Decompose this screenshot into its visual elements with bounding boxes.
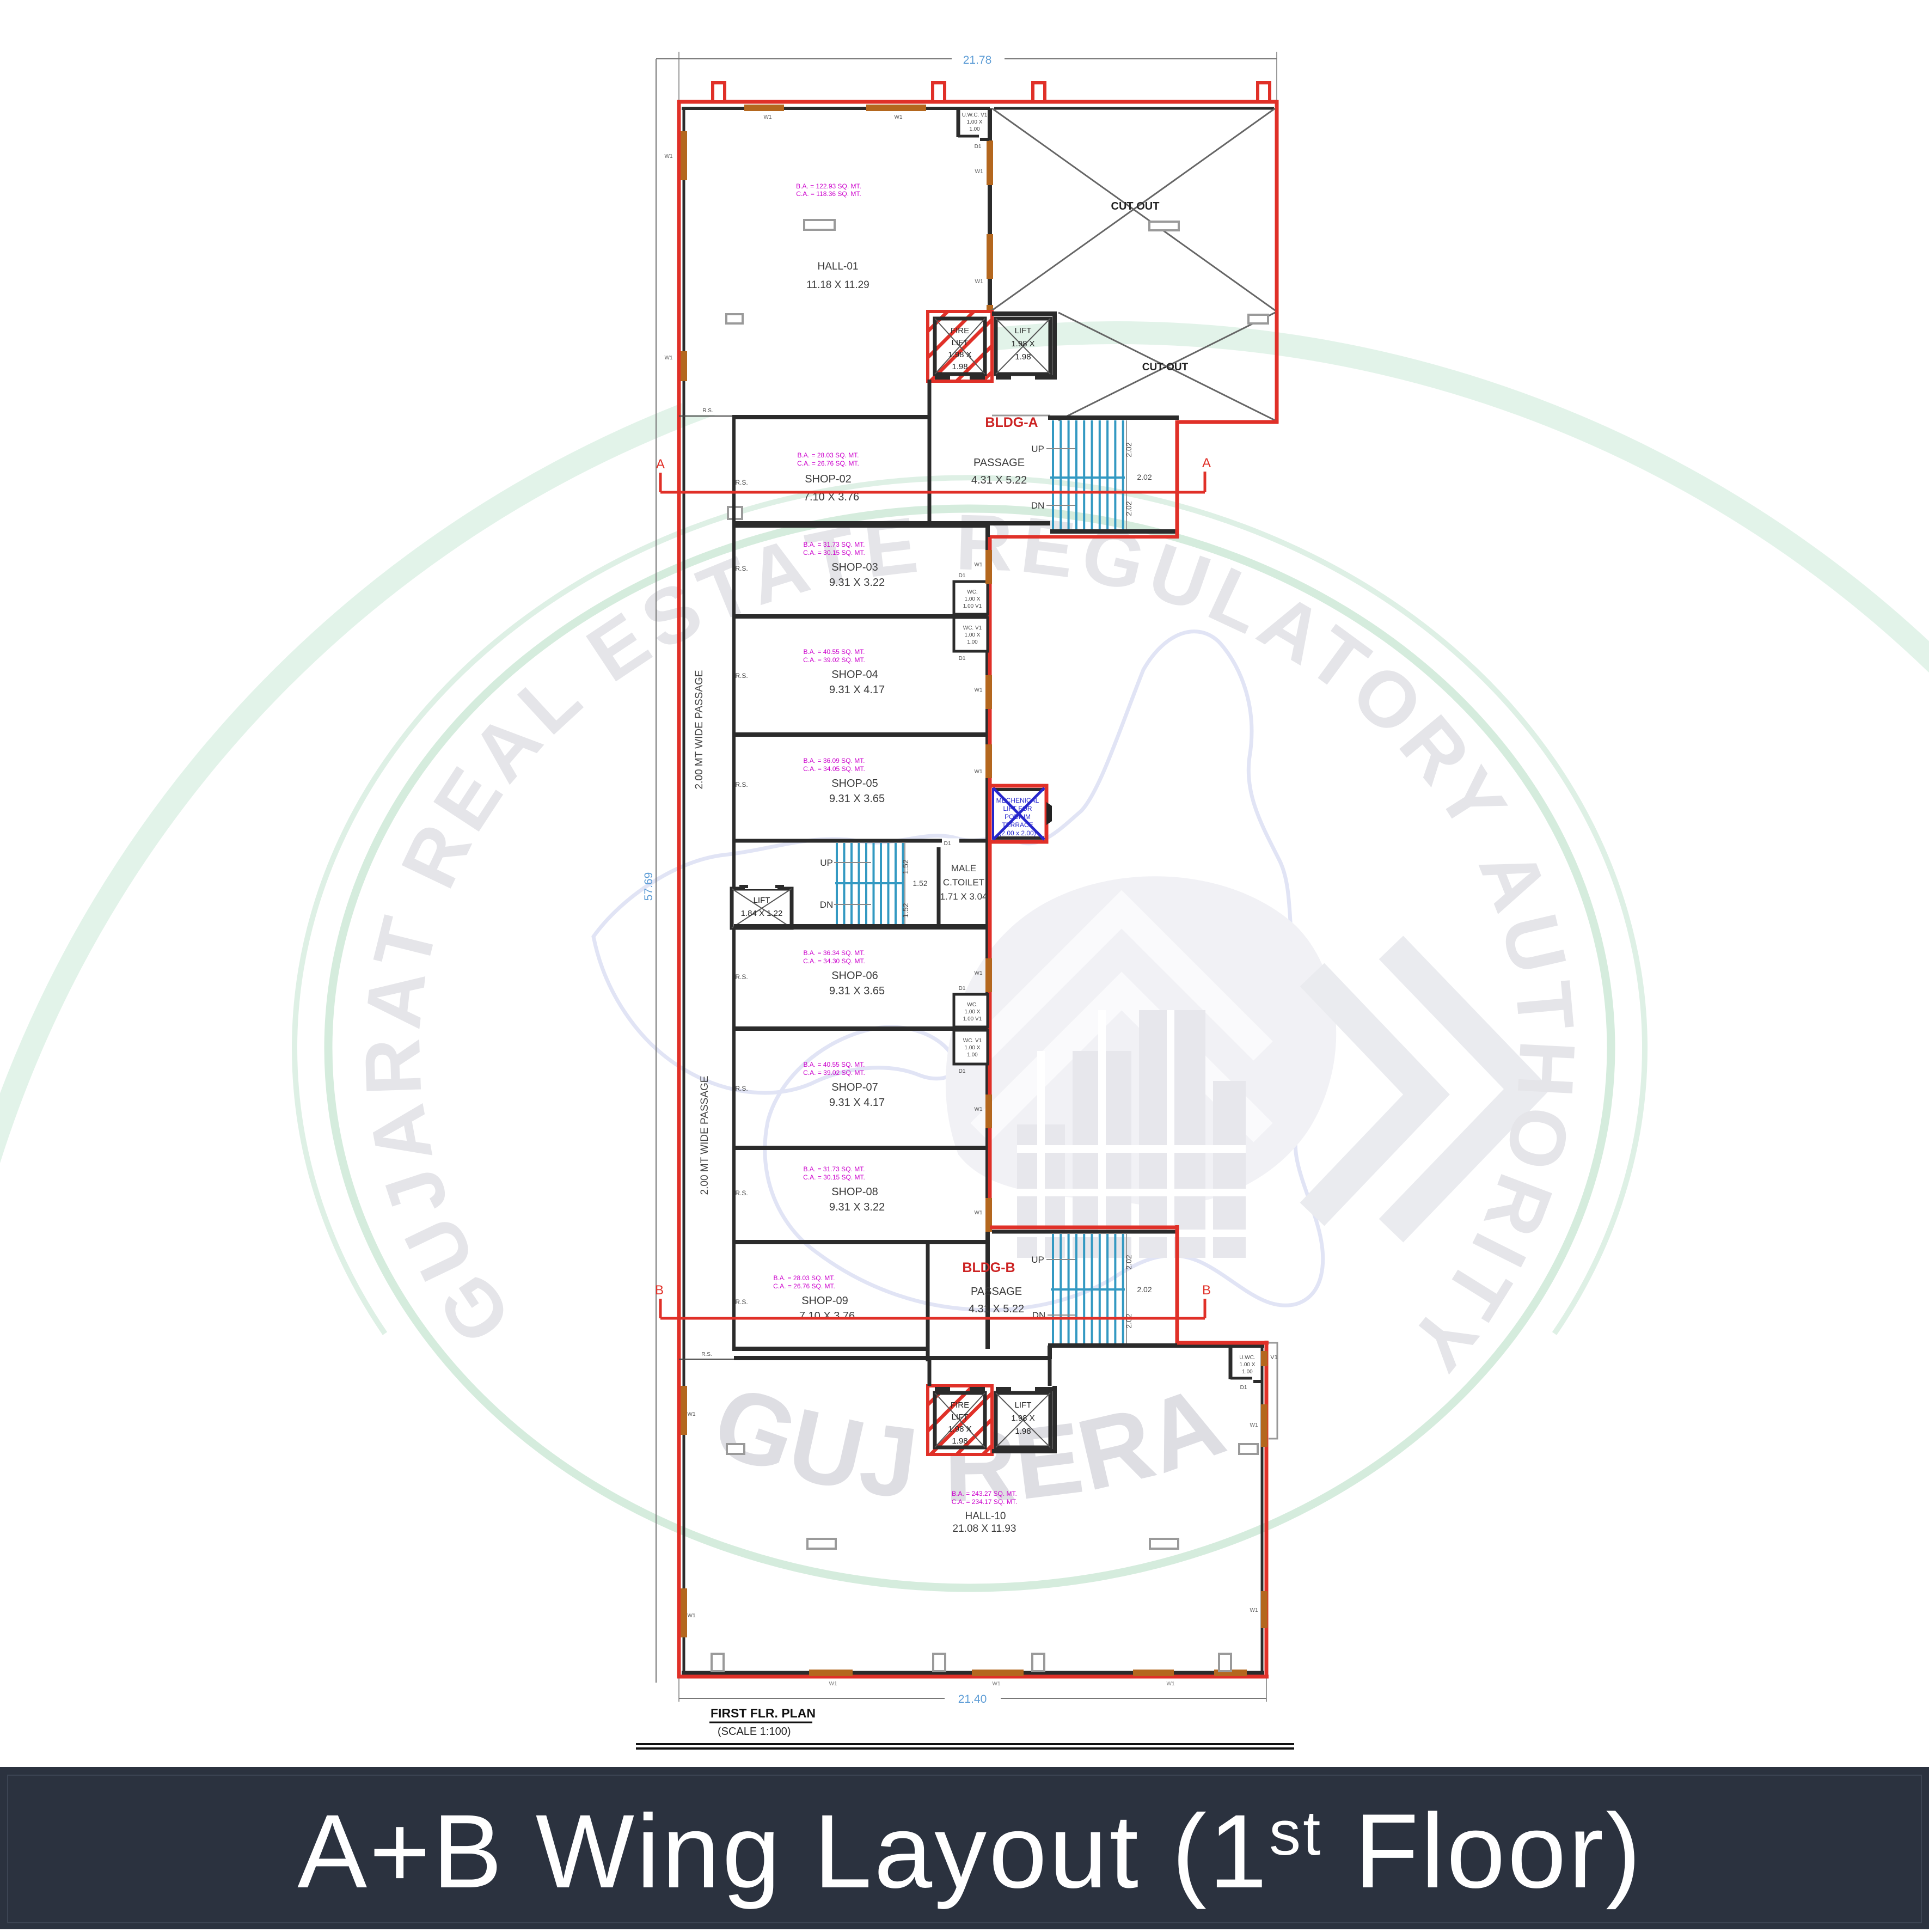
svg-text:4.31 X 5.22: 4.31 X 5.22 [971, 474, 1027, 486]
svg-text:B.A. = 243.27 SQ. MT.: B.A. = 243.27 SQ. MT. [952, 1490, 1017, 1497]
svg-text:1.98 X: 1.98 X [1011, 339, 1034, 349]
svg-text:R.S.: R.S. [735, 1189, 748, 1197]
svg-text:1.00 X: 1.00 X [1240, 1362, 1256, 1368]
svg-text:9.31 X 4.17: 9.31 X 4.17 [829, 1097, 885, 1109]
svg-text:V1: V1 [1270, 1354, 1277, 1361]
svg-text:BLDG-B: BLDG-B [962, 1260, 1015, 1275]
svg-text:C.A. = 39.02 SQ. MT.: C.A. = 39.02 SQ. MT. [803, 1069, 865, 1077]
svg-text:2.00 MT WIDE PASSAGE: 2.00 MT WIDE PASSAGE [699, 1076, 711, 1195]
svg-text:U.W.C. V1: U.W.C. V1 [962, 112, 988, 118]
svg-text:2.02: 2.02 [1137, 473, 1152, 481]
svg-text:D1: D1 [944, 841, 951, 847]
svg-text:(2.00 x 2.00): (2.00 x 2.00) [999, 829, 1036, 837]
svg-text:1.52: 1.52 [901, 903, 910, 918]
svg-text:W1: W1 [975, 279, 983, 285]
svg-text:B.A. = 28.03 SQ. MT.: B.A. = 28.03 SQ. MT. [773, 1274, 835, 1282]
svg-text:R.S.: R.S. [701, 1352, 712, 1358]
svg-text:1.98: 1.98 [952, 362, 967, 371]
svg-text:1.00 X: 1.00 X [965, 596, 981, 602]
svg-text:1.84 X 1.22: 1.84 X 1.22 [741, 909, 783, 918]
svg-text:R.S.: R.S. [735, 781, 748, 788]
svg-text:LIFT: LIFT [1015, 326, 1032, 335]
svg-text:W1: W1 [975, 1210, 983, 1216]
svg-text:1.00 V1: 1.00 V1 [963, 1016, 982, 1022]
svg-text:W1: W1 [665, 154, 673, 160]
svg-text:W1: W1 [1250, 1607, 1258, 1613]
svg-text:SHOP-04: SHOP-04 [831, 669, 878, 681]
svg-text:C.A. = 34.30 SQ. MT.: C.A. = 34.30 SQ. MT. [803, 957, 865, 965]
svg-text:W1: W1 [1167, 1681, 1175, 1687]
svg-text:LIFT: LIFT [754, 896, 770, 905]
svg-text:W1: W1 [975, 970, 983, 976]
svg-text:C.A. = 30.15 SQ. MT.: C.A. = 30.15 SQ. MT. [803, 549, 865, 557]
svg-text:9.31 X 3.65: 9.31 X 3.65 [829, 793, 885, 805]
svg-text:A: A [656, 457, 665, 472]
svg-text:SHOP-09: SHOP-09 [801, 1295, 848, 1307]
svg-text:1.98: 1.98 [952, 1436, 967, 1446]
svg-text:U.WC.: U.WC. [1239, 1355, 1255, 1361]
svg-text:D1: D1 [959, 656, 966, 662]
svg-text:C.A. = 39.02 SQ. MT.: C.A. = 39.02 SQ. MT. [803, 656, 865, 664]
svg-text:B.A. = 31.73 SQ. MT.: B.A. = 31.73 SQ. MT. [803, 541, 865, 548]
svg-text:1.98 X: 1.98 X [948, 350, 971, 359]
svg-text:7.10 X 3.76: 7.10 X 3.76 [799, 1310, 855, 1322]
svg-text:R.S.: R.S. [735, 1298, 748, 1306]
svg-text:1.00 X: 1.00 X [967, 119, 983, 125]
svg-text:B.A. = 122.93 SQ. MT.: B.A. = 122.93 SQ. MT. [796, 182, 861, 190]
svg-text:2.02: 2.02 [1124, 1313, 1133, 1328]
svg-text:WC. V1: WC. V1 [963, 625, 982, 631]
svg-text:D1: D1 [959, 1068, 966, 1074]
svg-text:DN: DN [1031, 500, 1045, 511]
svg-text:4.31 X 5.22: 4.31 X 5.22 [969, 1303, 1024, 1315]
svg-text:1.00 X: 1.00 X [965, 1009, 981, 1015]
svg-text:W1: W1 [764, 114, 772, 120]
svg-text:FIRE: FIRE [951, 1401, 969, 1410]
svg-text:1.00: 1.00 [1242, 1369, 1253, 1375]
svg-text:SHOP-05: SHOP-05 [831, 778, 878, 790]
svg-text:C.A. = 26.76 SQ. MT.: C.A. = 26.76 SQ. MT. [797, 460, 859, 467]
svg-text:1.52: 1.52 [901, 859, 910, 874]
svg-text:1.00 V1: 1.00 V1 [963, 603, 982, 609]
svg-text:W1: W1 [688, 1613, 696, 1619]
svg-text:D1: D1 [1240, 1385, 1247, 1391]
svg-text:SHOP-07: SHOP-07 [831, 1081, 878, 1093]
svg-text:C.A. = 34.05 SQ. MT.: C.A. = 34.05 SQ. MT. [803, 765, 865, 773]
svg-text:HALL-01: HALL-01 [818, 261, 859, 272]
svg-text:W1: W1 [688, 1411, 696, 1417]
svg-text:PASSAGE: PASSAGE [973, 457, 1025, 469]
svg-text:PODIUM: PODIUM [1005, 813, 1031, 821]
svg-text:57.69: 57.69 [642, 872, 655, 901]
svg-text:1.98 X: 1.98 X [1011, 1414, 1034, 1423]
svg-text:1.00 X: 1.00 X [965, 632, 981, 638]
svg-text:D1: D1 [975, 144, 982, 150]
svg-text:SHOP-08: SHOP-08 [831, 1186, 878, 1198]
svg-text:B.A. = 40.55 SQ. MT.: B.A. = 40.55 SQ. MT. [803, 648, 865, 656]
svg-text:R.S.: R.S. [735, 973, 748, 981]
svg-text:BLDG-A: BLDG-A [985, 415, 1038, 430]
svg-text:2.02: 2.02 [1124, 1255, 1133, 1269]
svg-text:1.00: 1.00 [967, 1052, 978, 1058]
svg-text:A+B Wing Layout (1st Floor): A+B Wing Layout (1st Floor) [297, 1792, 1643, 1910]
svg-text:21.40: 21.40 [958, 1693, 987, 1705]
svg-text:LIFT: LIFT [952, 1413, 969, 1422]
svg-text:1.00: 1.00 [967, 639, 978, 645]
svg-text:W1: W1 [975, 169, 983, 175]
svg-text:SHOP-03: SHOP-03 [831, 561, 878, 573]
svg-text:C.A. = 26.76 SQ. MT.: C.A. = 26.76 SQ. MT. [773, 1282, 835, 1290]
svg-text:D1: D1 [959, 573, 966, 579]
svg-text:C.A. = 30.15 SQ. MT.: C.A. = 30.15 SQ. MT. [803, 1173, 865, 1181]
svg-text:B: B [1202, 1283, 1211, 1298]
svg-text:W1: W1 [895, 114, 903, 120]
svg-text:A: A [1202, 456, 1211, 470]
svg-text:9.31 X 3.22: 9.31 X 3.22 [829, 577, 885, 589]
svg-text:1.71 X 3.04: 1.71 X 3.04 [940, 891, 988, 902]
svg-text:1.98 X: 1.98 X [948, 1424, 971, 1434]
svg-text:21.08 X 11.93: 21.08 X 11.93 [953, 1523, 1016, 1534]
svg-text:2.00 MT WIDE PASSAGE: 2.00 MT WIDE PASSAGE [694, 670, 705, 790]
svg-text:9.31 X 3.65: 9.31 X 3.65 [829, 985, 885, 997]
svg-text:R.S.: R.S. [702, 408, 713, 414]
svg-text:C.TOILET: C.TOILET [943, 877, 984, 888]
svg-text:W1: W1 [665, 355, 673, 361]
svg-text:LIFT: LIFT [1015, 1401, 1032, 1410]
svg-text:FIRE: FIRE [951, 326, 969, 335]
svg-text:SHOP-02: SHOP-02 [805, 473, 852, 485]
svg-text:R.S.: R.S. [735, 672, 748, 680]
svg-text:D1: D1 [959, 986, 966, 992]
svg-text:MALE: MALE [951, 863, 976, 873]
svg-text:9.31 X 3.22: 9.31 X 3.22 [829, 1201, 885, 1213]
svg-text:W1: W1 [975, 1106, 983, 1112]
svg-text:1.52: 1.52 [913, 879, 927, 888]
svg-text:B.A. = 36.09 SQ. MT.: B.A. = 36.09 SQ. MT. [803, 757, 865, 765]
svg-text:21.78: 21.78 [963, 54, 992, 66]
svg-text:9.31 X 4.17: 9.31 X 4.17 [829, 684, 885, 696]
svg-text:B.A. = 40.55 SQ. MT.: B.A. = 40.55 SQ. MT. [803, 1061, 865, 1068]
svg-text:2.02: 2.02 [1137, 1285, 1152, 1294]
svg-text:WC.: WC. [967, 589, 977, 595]
svg-text:UP: UP [820, 858, 833, 868]
svg-text:SHOP-06: SHOP-06 [831, 970, 878, 982]
svg-text:UP: UP [1031, 444, 1044, 454]
svg-text:R.S.: R.S. [735, 565, 748, 572]
svg-text:1.98: 1.98 [1015, 352, 1031, 362]
svg-text:LIFT: LIFT [952, 338, 969, 347]
svg-text:1.00: 1.00 [969, 126, 980, 132]
svg-text:LIFT FOR: LIFT FOR [1003, 805, 1032, 812]
svg-text:HALL-10: HALL-10 [965, 1511, 1006, 1522]
svg-text:B.A. = 31.73 SQ. MT.: B.A. = 31.73 SQ. MT. [803, 1165, 865, 1173]
svg-text:UP: UP [1031, 1255, 1044, 1265]
svg-text:WC.: WC. [967, 1002, 977, 1008]
svg-text:B.A. = 36.34 SQ. MT.: B.A. = 36.34 SQ. MT. [803, 949, 865, 957]
svg-text:TERRACE: TERRACE [1002, 821, 1033, 829]
svg-text:B: B [655, 1283, 664, 1298]
svg-text:DN: DN [820, 900, 834, 910]
svg-text:PASSAGE: PASSAGE [971, 1286, 1022, 1298]
svg-text:B.A. = 28.03 SQ. MT.: B.A. = 28.03 SQ. MT. [797, 451, 859, 459]
svg-text:W1: W1 [829, 1681, 837, 1687]
svg-text:MECHENICAL: MECHENICAL [996, 797, 1039, 804]
svg-text:W1: W1 [975, 769, 983, 775]
svg-text:CUT-OUT: CUT-OUT [1142, 362, 1189, 373]
svg-text:W1: W1 [1250, 1422, 1258, 1428]
svg-text:1.00 X: 1.00 X [965, 1045, 981, 1051]
svg-text:2.02: 2.02 [1124, 442, 1133, 457]
svg-text:(SCALE 1:100): (SCALE 1:100) [718, 1726, 791, 1738]
svg-text:2.02: 2.02 [1124, 501, 1133, 516]
svg-text:11.18 X 11.29: 11.18 X 11.29 [806, 279, 869, 291]
svg-text:W1: W1 [975, 687, 983, 693]
svg-text:C.A. = 118.36 SQ. MT.: C.A. = 118.36 SQ. MT. [796, 190, 861, 198]
svg-text:CUT OUT: CUT OUT [1111, 200, 1160, 212]
svg-text:W1: W1 [975, 562, 983, 568]
svg-text:WC. V1: WC. V1 [963, 1038, 982, 1044]
svg-text:R.S.: R.S. [735, 1085, 748, 1092]
svg-text:FIRST FLR. PLAN: FIRST FLR. PLAN [711, 1706, 816, 1720]
svg-text:1.98: 1.98 [1015, 1427, 1031, 1436]
svg-text:W1: W1 [993, 1681, 1001, 1687]
svg-text:R.S.: R.S. [735, 479, 748, 486]
svg-text:C.A. = 234.17 SQ. MT.: C.A. = 234.17 SQ. MT. [952, 1498, 1017, 1506]
